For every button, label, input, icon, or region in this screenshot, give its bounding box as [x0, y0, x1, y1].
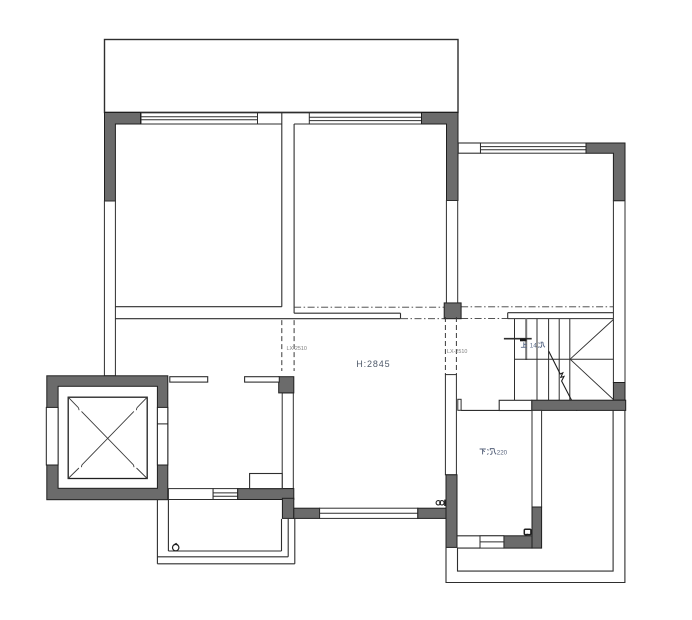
svg-text:LX-2510: LX-2510: [447, 349, 467, 355]
svg-text:LX-2510: LX-2510: [287, 346, 307, 352]
svg-text:H:2845: H:2845: [356, 359, 390, 369]
svg-text:220: 220: [497, 450, 508, 457]
svg-text:14: 14: [530, 342, 537, 349]
